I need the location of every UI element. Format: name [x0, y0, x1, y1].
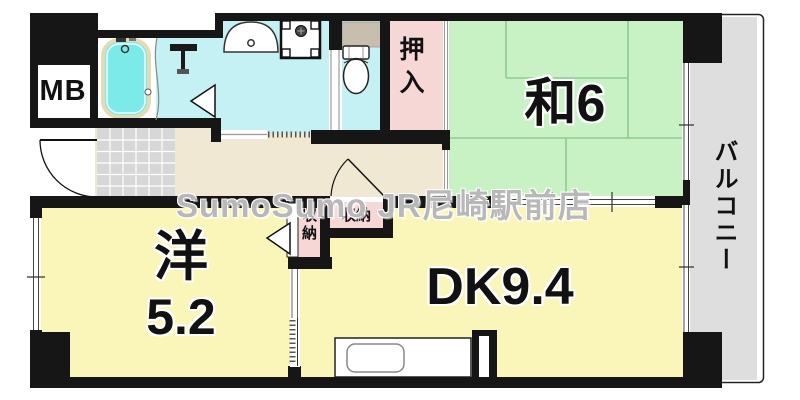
floor-plan: MB 押入 和6 バルコニー 収納 収納 洋 5.2 DK9.4 SumoSum… [0, 0, 800, 400]
label-meter-box: MB [34, 77, 92, 106]
label-japanese-room: 和6 [447, 78, 683, 130]
entrance-door-arc [40, 140, 97, 197]
label-western-room-size: 5.2 [131, 292, 231, 342]
watermark-text: SumoSumo JR尼崎駅前店 [176, 179, 636, 227]
label-western-room-name: 洋 [131, 230, 231, 284]
washing-machine-pan-icon [281, 20, 320, 58]
label-dining-kitchen: DK9.4 [380, 261, 620, 313]
label-closet-oshiire: 押入 [397, 36, 422, 102]
bathtub-icon [103, 33, 151, 117]
label-balcony: バルコニー [711, 139, 735, 274]
entrance-tiles [97, 128, 175, 197]
kitchen-counter-icon [335, 338, 471, 377]
